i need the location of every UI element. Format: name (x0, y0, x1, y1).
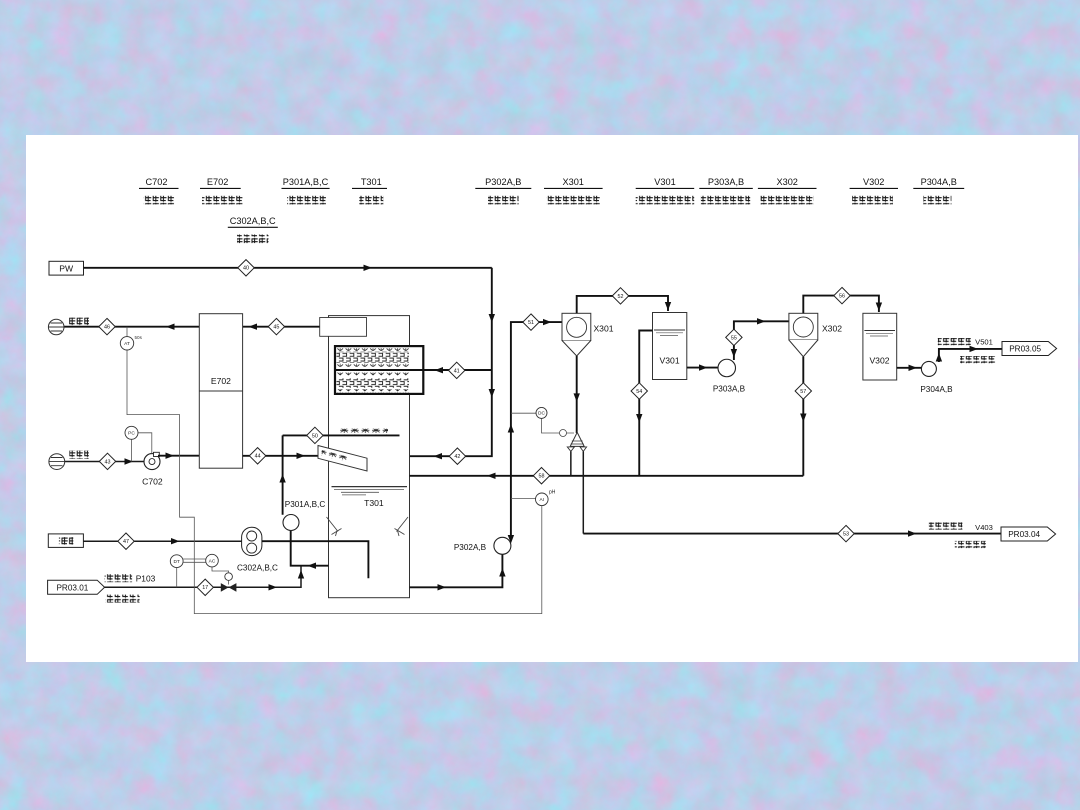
svg-text:V403: V403 (975, 523, 993, 532)
svg-text:52: 52 (618, 294, 624, 300)
svg-text:P103: P103 (136, 573, 156, 583)
svg-text:P302A,B: P302A,B (485, 177, 521, 187)
svg-text:E702: E702 (211, 376, 231, 386)
svg-text:C702: C702 (142, 477, 163, 487)
svg-text:PR03.05: PR03.05 (1009, 345, 1041, 354)
svg-text:PR03.01: PR03.01 (56, 583, 88, 592)
svg-text:54: 54 (636, 389, 642, 395)
svg-text:53: 53 (843, 532, 849, 538)
svg-text:DC: DC (538, 411, 545, 417)
svg-text:PW: PW (59, 264, 74, 274)
svg-text:P304A,B: P304A,B (920, 385, 953, 394)
svg-text:E702: E702 (207, 177, 228, 187)
svg-text:PC: PC (128, 431, 135, 437)
svg-text:V301: V301 (660, 356, 680, 366)
svg-text:AT: AT (124, 341, 130, 347)
svg-text:43: 43 (105, 459, 111, 465)
svg-text:58: 58 (539, 474, 545, 480)
svg-text:X301: X301 (593, 324, 613, 334)
svg-text:T301: T301 (361, 177, 382, 187)
svg-text:40: 40 (243, 266, 249, 272)
svg-text:P301A,B,C: P301A,B,C (283, 177, 329, 187)
svg-text:42: 42 (454, 454, 460, 460)
svg-text:46: 46 (104, 325, 110, 331)
svg-text:41: 41 (454, 368, 460, 374)
svg-text:P303A,B: P303A,B (713, 385, 746, 394)
svg-text:PR03.04: PR03.04 (1008, 530, 1040, 539)
svg-text:C302A,B,C: C302A,B,C (237, 563, 278, 572)
svg-text:P302A,B: P302A,B (454, 543, 487, 552)
svg-text:57: 57 (800, 389, 806, 395)
svg-text:50: 50 (312, 433, 318, 439)
svg-text:C302A,B,C: C302A,B,C (230, 216, 276, 226)
svg-text:X302: X302 (822, 324, 842, 334)
svg-text:55: 55 (731, 335, 737, 341)
svg-text:51: 51 (528, 320, 534, 326)
svg-text:45: 45 (273, 325, 279, 331)
svg-text:P301A,B,C: P301A,B,C (285, 500, 326, 509)
svg-text:C702: C702 (146, 177, 168, 187)
svg-text:56: 56 (839, 294, 845, 300)
svg-text:50s: 50s (135, 335, 143, 340)
svg-text:AI: AI (540, 497, 545, 503)
svg-text:X302: X302 (776, 177, 797, 187)
svg-text:47: 47 (123, 539, 129, 545)
svg-text:DT: DT (173, 559, 179, 565)
svg-text:V302: V302 (869, 356, 889, 366)
svg-text:AC: AC (209, 558, 216, 564)
svg-text:V501: V501 (975, 338, 993, 347)
svg-text:V301: V301 (654, 177, 675, 187)
svg-text:44: 44 (255, 454, 261, 460)
svg-text:V302: V302 (863, 177, 884, 187)
svg-text:P304A,B: P304A,B (921, 177, 957, 187)
svg-text:17: 17 (202, 585, 208, 591)
svg-text:pH: pH (549, 490, 556, 496)
svg-text:T301: T301 (364, 498, 384, 508)
svg-text:P303A,B: P303A,B (708, 177, 744, 187)
svg-text:X301: X301 (562, 177, 583, 187)
